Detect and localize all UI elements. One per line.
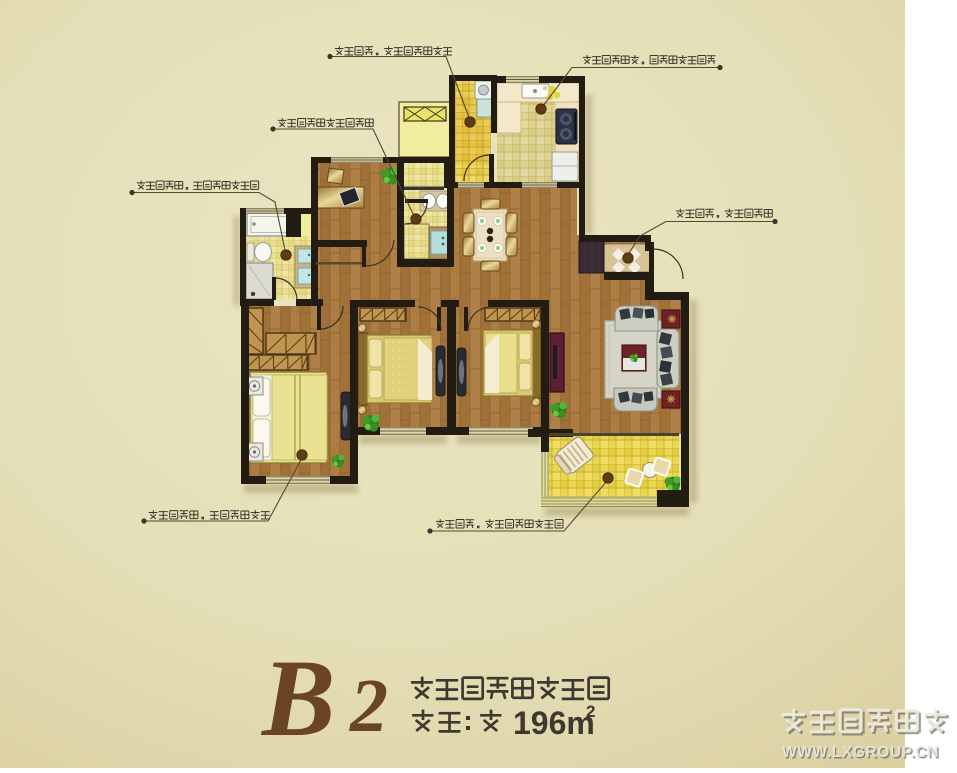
svg-text:B: B <box>260 637 335 759</box>
svg-text:2: 2 <box>349 664 388 748</box>
svg-text:196m: 196m <box>513 705 595 741</box>
svg-text:2: 2 <box>586 702 595 721</box>
svg-text:WWW.LXGROUP.CN: WWW.LXGROUP.CN <box>782 744 939 761</box>
